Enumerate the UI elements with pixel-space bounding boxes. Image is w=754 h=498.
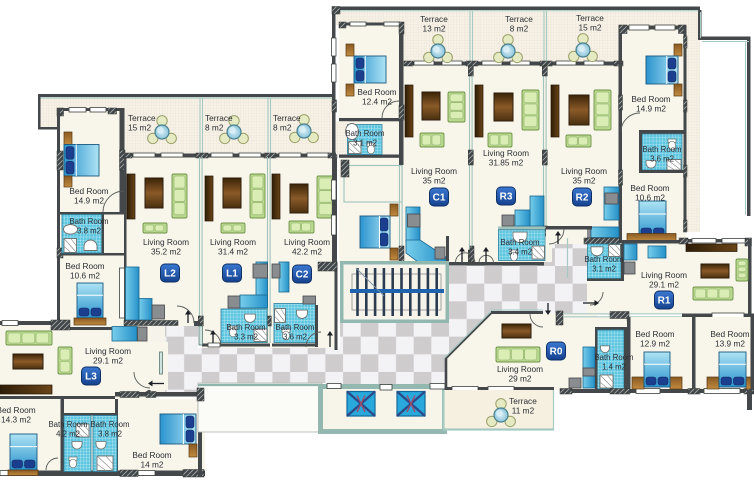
svg-text:12.9 m2: 12.9 m2 [640,339,670,349]
svg-text:Terrace: Terrace [509,396,537,406]
svg-text:13.9 m2: 13.9 m2 [715,339,745,349]
svg-text:Terrace: Terrace [505,14,533,24]
svg-text:R2: R2 [576,192,589,203]
svg-text:Bed Room: Bed Room [635,329,674,339]
svg-text:3.1 m2: 3.1 m2 [592,265,616,274]
svg-text:35 m2: 35 m2 [422,176,445,186]
svg-text:3.6 m2: 3.6 m2 [650,155,674,164]
svg-text:Bed Room: Bed Room [630,183,669,193]
svg-text:Living Room: Living Room [641,270,687,280]
svg-text:Bath Room: Bath Room [594,353,633,362]
svg-text:8 m2: 8 m2 [510,24,529,34]
svg-text:Bath Room: Bath Room [226,323,265,332]
svg-text:Bath Room: Bath Room [642,145,681,154]
svg-text:Living Room: Living Room [210,237,256,247]
svg-text:15 m2: 15 m2 [128,123,151,133]
svg-text:Living Room: Living Room [483,148,529,158]
svg-text:29.1 m2: 29.1 m2 [649,280,679,290]
svg-text:Bath Room: Bath Room [69,217,108,226]
svg-text:Terrace: Terrace [128,113,156,123]
svg-text:Living Room: Living Room [561,166,607,176]
svg-text:42.2 m2: 42.2 m2 [292,247,322,257]
svg-text:Living Room: Living Room [143,237,189,247]
svg-text:Bed Room: Bed Room [65,261,104,271]
svg-text:29 m2: 29 m2 [508,374,531,384]
svg-text:14.9 m2: 14.9 m2 [636,104,666,114]
svg-text:L1: L1 [226,268,238,279]
svg-text:Bed Room: Bed Room [631,94,670,104]
svg-text:35.2 m2: 35.2 m2 [151,247,181,257]
svg-text:R0: R0 [550,346,563,357]
svg-text:14.9 m2: 14.9 m2 [74,196,104,206]
svg-text:Bed Room: Bed Room [357,87,396,97]
svg-text:29.1 m2: 29.1 m2 [93,356,123,366]
svg-text:Living Room: Living Room [284,237,330,247]
svg-text:L2: L2 [164,268,176,279]
svg-text:10.6 m2: 10.6 m2 [635,193,665,203]
svg-text:Terrace: Terrace [205,113,233,123]
svg-text:31.4 m2: 31.4 m2 [218,247,248,257]
svg-text:R1: R1 [658,295,671,306]
svg-text:C2: C2 [296,269,309,280]
svg-text:14 m2: 14 m2 [140,460,163,470]
svg-text:8 m2: 8 m2 [205,123,224,133]
svg-text:Bath Room: Bath Room [584,255,623,264]
svg-text:Terrace: Terrace [273,113,301,123]
svg-text:1.4 m2: 1.4 m2 [602,363,626,372]
svg-text:Terrace: Terrace [576,13,604,23]
svg-text:C1: C1 [433,192,446,203]
svg-text:Bath Room: Bath Room [500,238,539,247]
svg-text:4.2 m2: 4.2 m2 [56,430,80,439]
svg-text:Living Room: Living Room [411,166,457,176]
svg-text:11 m2: 11 m2 [512,406,535,416]
svg-text:Bed Room: Bed Room [710,329,749,339]
svg-text:Bath Room: Bath Room [275,323,314,332]
svg-text:Living Room: Living Room [497,364,543,374]
svg-text:R3: R3 [500,191,513,202]
svg-text:3.1 m2: 3.1 m2 [353,139,377,148]
svg-text:Bath Room: Bath Room [345,129,384,138]
svg-text:3.6 m2: 3.6 m2 [283,333,307,342]
svg-text:3.8 m2: 3.8 m2 [98,430,122,439]
svg-text:3.4 m2: 3.4 m2 [508,248,532,257]
svg-text:35 m2: 35 m2 [572,176,595,186]
svg-text:14.3 m2: 14.3 m2 [1,415,31,425]
svg-text:L3: L3 [85,371,97,382]
svg-text:10.6 m2: 10.6 m2 [70,271,100,281]
svg-text:15 m2: 15 m2 [578,23,601,33]
svg-text:Bed Room: Bed Room [0,405,36,415]
svg-text:8 m2: 8 m2 [273,123,292,133]
svg-text:Bed Room: Bed Room [132,450,171,460]
svg-text:Terrace: Terrace [420,14,448,24]
svg-text:Bed Room: Bed Room [69,186,108,196]
svg-text:3.8 m2: 3.8 m2 [77,227,101,236]
svg-text:3.3 m2: 3.3 m2 [234,333,258,342]
svg-text:Bath Room: Bath Room [48,420,87,429]
svg-text:31.85 m2: 31.85 m2 [489,158,524,168]
svg-text:13 m2: 13 m2 [422,24,445,34]
svg-text:Living Room: Living Room [85,346,131,356]
svg-text:Bath Room: Bath Room [90,420,129,429]
svg-text:12.4 m2: 12.4 m2 [362,97,392,107]
